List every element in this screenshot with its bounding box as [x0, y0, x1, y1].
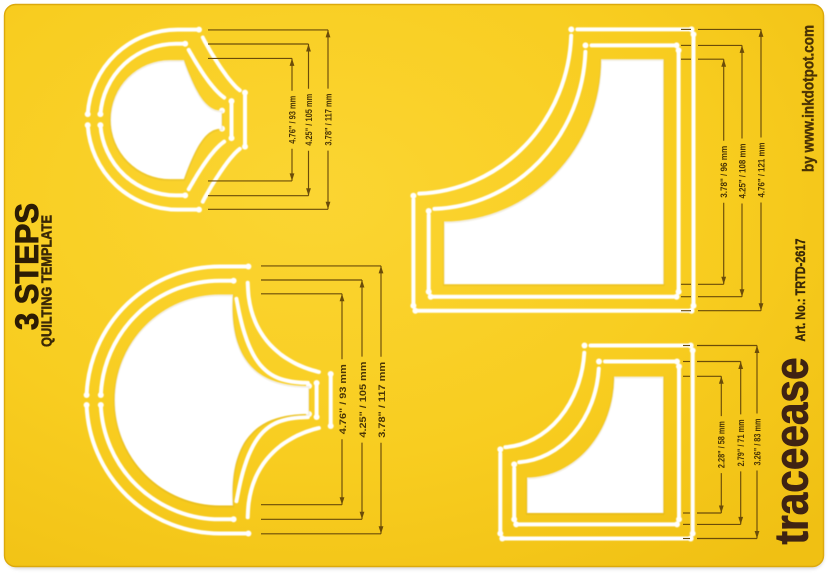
svg-text:3.26" / 83 mm: 3.26" / 83 mm	[752, 419, 762, 466]
svg-text:4.25" / 105 mm: 4.25" / 105 mm	[304, 94, 314, 146]
svg-text:traceease: traceease	[765, 358, 818, 545]
svg-text:4.76" / 121 mm: 4.76" / 121 mm	[756, 143, 766, 198]
svg-text:QUILTING TEMPLATE: QUILTING TEMPLATE	[39, 215, 56, 347]
svg-text:3.78" / 117 mm: 3.78" / 117 mm	[323, 94, 333, 146]
svg-text:4.25" / 105 mm: 4.25" / 105 mm	[358, 362, 368, 438]
svg-text:by www.inkdotpot.com: by www.inkdotpot.com	[801, 25, 818, 172]
svg-text:4.76" / 93 mm: 4.76" / 93 mm	[287, 96, 297, 144]
svg-text:2.28" / 58 mm: 2.28" / 58 mm	[717, 421, 727, 468]
svg-text:3.78" / 96 mm: 3.78" / 96 mm	[719, 146, 729, 198]
svg-text:4.25" / 108 mm: 4.25" / 108 mm	[737, 144, 747, 199]
svg-text:4.76" / 93 mm: 4.76" / 93 mm	[338, 364, 348, 434]
svg-text:2.79" / 71 mm: 2.79" / 71 mm	[736, 419, 746, 466]
svg-text:3.78" / 117 mm: 3.78" / 117 mm	[377, 362, 387, 438]
svg-text:Art. No.: TRTD-2617: Art. No.: TRTD-2617	[792, 238, 808, 341]
